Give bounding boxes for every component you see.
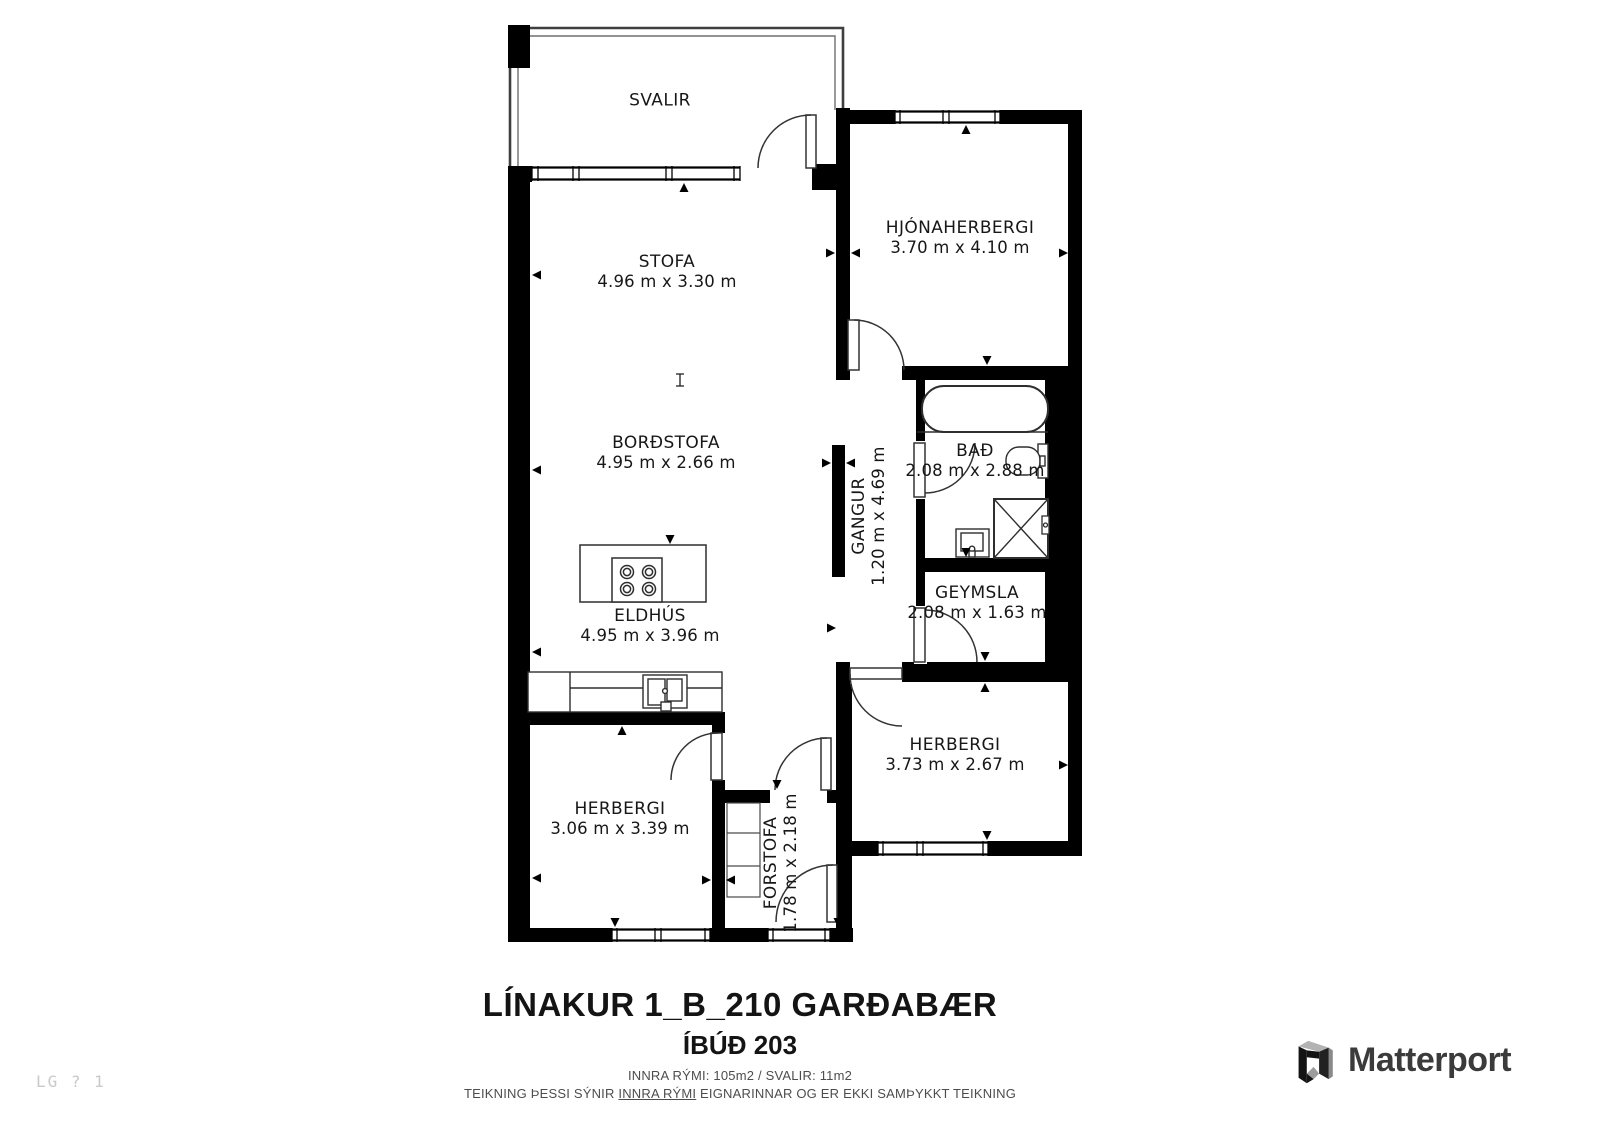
room-label-1: STOFA4.96 m x 3.30 m [597, 253, 736, 291]
room-dimensions: 3.06 m x 3.39 m [550, 819, 689, 838]
room-name: GANGUR [850, 446, 869, 585]
room-name: ELDHÚS [580, 607, 719, 626]
room-label-3: BORÐSTOFA4.95 m x 2.66 m [596, 434, 735, 472]
floorplan-page: SVALIRSTOFA4.96 m x 3.30 mHJÓNAHERBERGI3… [0, 0, 1600, 1131]
area-summary-text: INNRA RÝMI: 105m2 / SVALIR: 11m2 [628, 1068, 852, 1083]
room-name: FORSTOFA [762, 793, 781, 932]
matterport-wordmark: Matterport [1348, 1041, 1511, 1080]
kitchen-counter [528, 672, 722, 712]
matterport-icon [1290, 1034, 1340, 1086]
dimension-tick [676, 374, 684, 386]
footer: LÍNAKUR 1_B_210 GARÐABÆR ÍBÚÐ 203 INNRA … [437, 986, 1043, 1101]
watermark-text: LG ? 1 [36, 1072, 106, 1091]
room-label-10: FORSTOFA1.78 m x 2.18 m [762, 793, 800, 932]
window-herbergi-right [878, 841, 988, 856]
room-name: BORÐSTOFA [596, 434, 735, 453]
room-name: HJÓNAHERBERGI [886, 219, 1034, 238]
room-dimensions: 2.08 m x 2.88 m [905, 461, 1044, 480]
room-dimensions: 3.70 m x 4.10 m [886, 238, 1034, 257]
window-hjonaherbergi [895, 110, 1000, 124]
window-stofa [532, 166, 740, 181]
door-herbergi-left [671, 733, 722, 780]
room-label-8: HERBERGI3.73 m x 2.67 m [885, 736, 1024, 774]
room-dimensions: 1.78 m x 2.18 m [781, 793, 800, 932]
door-balcony [758, 115, 816, 168]
door-herbergi-right [850, 668, 902, 726]
room-label-2: HJÓNAHERBERGI3.70 m x 4.10 m [886, 219, 1034, 257]
matterport-logo: Matterport [1290, 1034, 1511, 1086]
bathtub [917, 386, 1048, 432]
floor-plan-drawing [0, 0, 1600, 1131]
room-dimensions: 3.73 m x 2.67 m [885, 755, 1024, 774]
room-name: BAÐ [905, 442, 1044, 461]
plan-subtitle: ÍBÚÐ 203 [437, 1030, 1043, 1061]
room-dimensions: 4.95 m x 3.96 m [580, 626, 719, 645]
room-name: GEYMSLA [907, 584, 1046, 603]
shower [994, 499, 1049, 558]
room-dimensions: 2.08 m x 1.63 m [907, 603, 1046, 622]
room-name: HERBERGI [885, 736, 1024, 755]
plan-title: LÍNAKUR 1_B_210 GARÐABÆR [437, 986, 1043, 1024]
bathroom-sink [956, 529, 989, 557]
room-label-7: ELDHÚS4.95 m x 3.96 m [580, 607, 719, 645]
room-label-4: GANGUR1.20 m x 4.69 m [850, 446, 888, 585]
room-label-6: GEYMSLA2.08 m x 1.63 m [907, 584, 1046, 622]
kitchen-island [580, 545, 706, 602]
room-label-5: BAÐ2.08 m x 2.88 m [905, 442, 1044, 480]
door-forstofa-inner [775, 738, 831, 790]
room-name: HERBERGI [550, 800, 689, 819]
room-label-9: HERBERGI3.06 m x 3.39 m [550, 800, 689, 838]
door-hjonaherbergi [848, 320, 904, 370]
room-label-0: SVALIR [629, 92, 691, 111]
disclaimer: TEIKNING ÞESSI SÝNIR INNRA RÝMI EIGNARIN… [437, 1086, 1043, 1101]
room-dimensions: 1.20 m x 4.69 m [869, 446, 888, 585]
room-name: STOFA [597, 253, 736, 272]
room-name: SVALIR [629, 92, 691, 111]
window-herbergi-left [612, 928, 710, 942]
room-dimensions: 4.95 m x 2.66 m [596, 453, 735, 472]
room-dimensions: 4.96 m x 3.30 m [597, 272, 736, 291]
area-summary: INNRA RÝMI: 105m2 / SVALIR: 11m2 [437, 1068, 1043, 1083]
door-openings [710, 364, 927, 780]
